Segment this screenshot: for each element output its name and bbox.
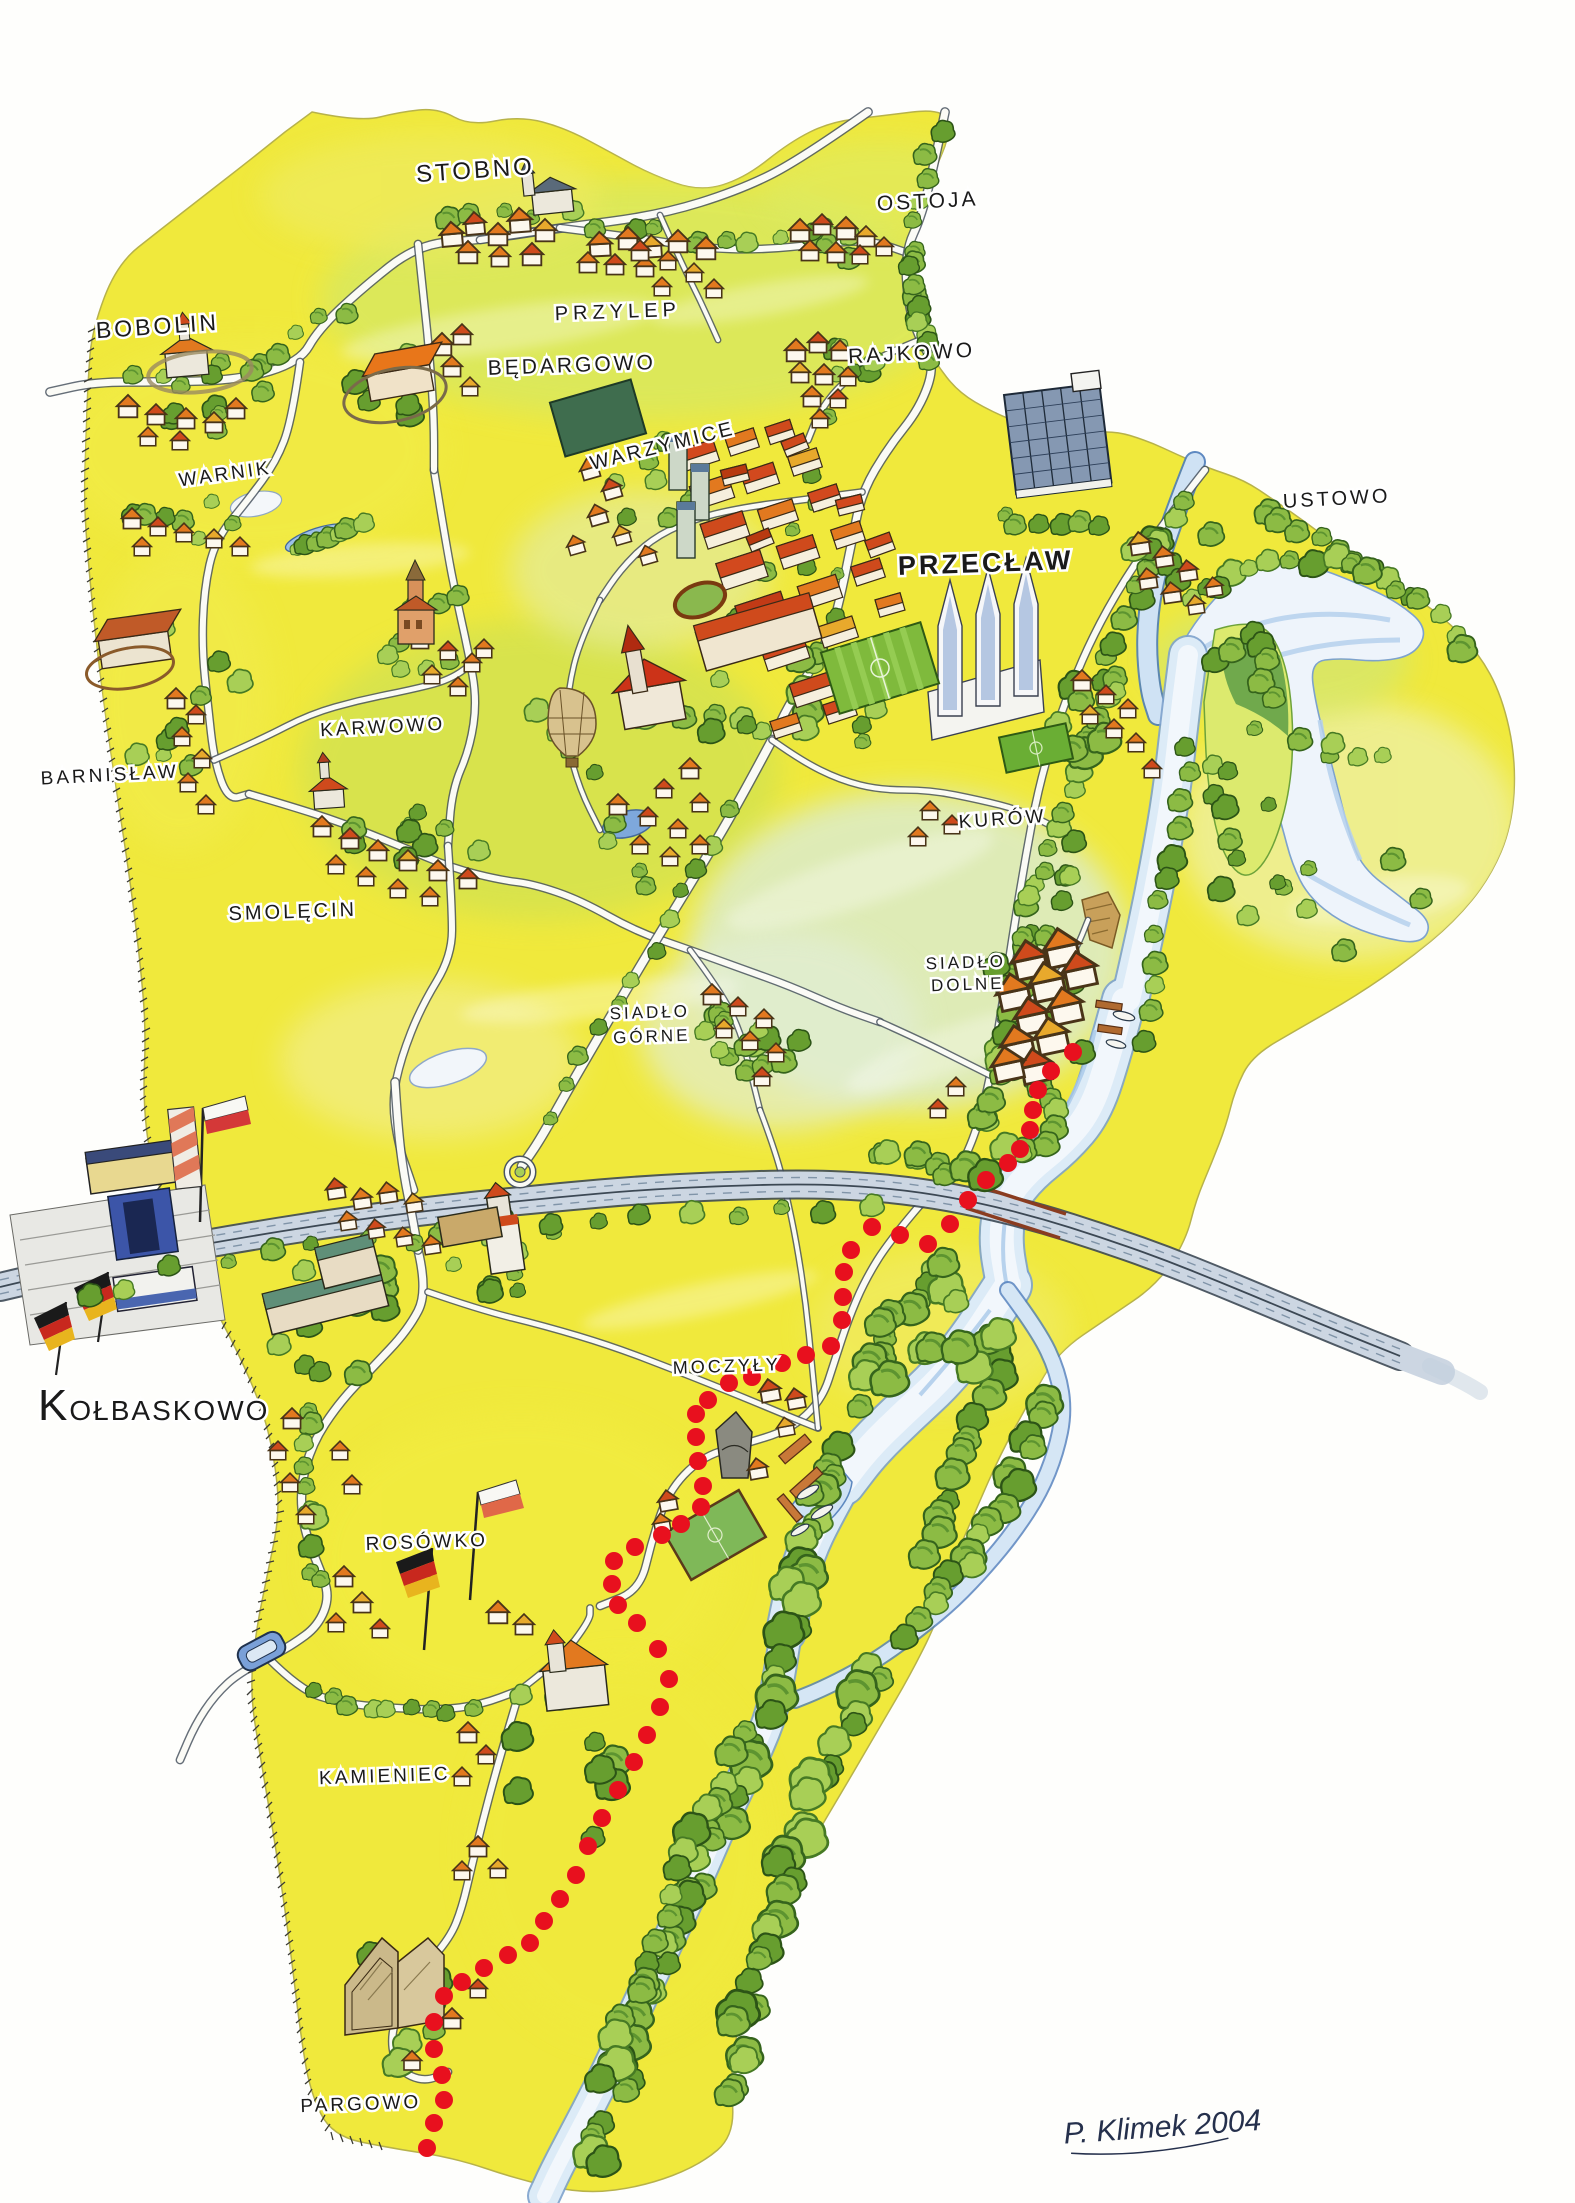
svg-text:DOLNE: DOLNE bbox=[931, 974, 1005, 996]
svg-text:SMOLĘCIN: SMOLĘCIN bbox=[228, 899, 357, 925]
svg-text:SIADŁO: SIADŁO bbox=[609, 1002, 690, 1024]
svg-text:ROSÓWKO: ROSÓWKO bbox=[365, 1529, 488, 1555]
svg-text:PRZECŁAW: PRZECŁAW bbox=[897, 545, 1073, 581]
svg-text:PARGOWO: PARGOWO bbox=[300, 2092, 422, 2117]
svg-text:SIADŁO: SIADŁO bbox=[925, 952, 1006, 974]
svg-text:PRZYLEP: PRZYLEP bbox=[554, 299, 681, 325]
svg-text:MOCZYŁY: MOCZYŁY bbox=[672, 1354, 781, 1378]
svg-text:GÓRNE: GÓRNE bbox=[613, 1026, 691, 1048]
